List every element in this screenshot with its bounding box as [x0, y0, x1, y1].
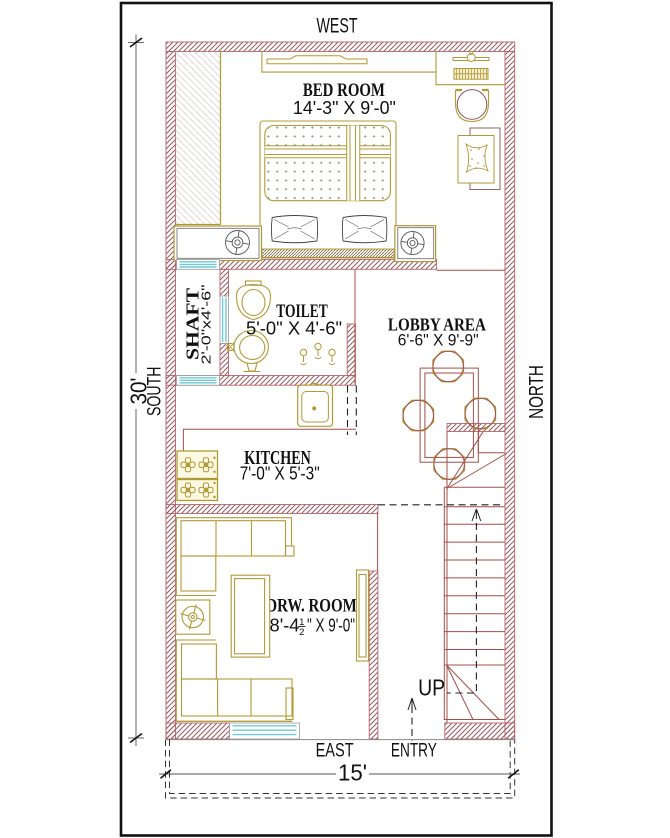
svg-text:WEST: WEST: [317, 15, 358, 38]
svg-text:" X 9'-0": " X 9'-0": [307, 616, 355, 636]
svg-text:NORTH: NORTH: [526, 365, 548, 419]
svg-text:ENTRY: ENTRY: [391, 741, 437, 762]
svg-text:DRW. ROOM: DRW. ROOM: [266, 596, 357, 617]
svg-text:2'-0"x4'-6": 2'-0"x4'-6": [199, 284, 214, 365]
svg-text:8'-4: 8'-4: [270, 616, 300, 636]
svg-text:UP: UP: [418, 675, 445, 701]
svg-text:2: 2: [299, 627, 304, 638]
svg-text:SOUTH: SOUTH: [145, 367, 166, 417]
svg-text:7'-0" X 5'-3": 7'-0" X 5'-3": [240, 464, 320, 484]
svg-text:14'-3" X 9'-0": 14'-3" X 9'-0": [293, 97, 396, 118]
svg-text:5'-0" X 4'-6": 5'-0" X 4'-6": [246, 318, 342, 339]
svg-text:6'-6" X 9'-9": 6'-6" X 9'-9": [398, 331, 479, 350]
svg-text:EAST: EAST: [316, 741, 354, 762]
svg-text:15': 15': [338, 760, 367, 786]
